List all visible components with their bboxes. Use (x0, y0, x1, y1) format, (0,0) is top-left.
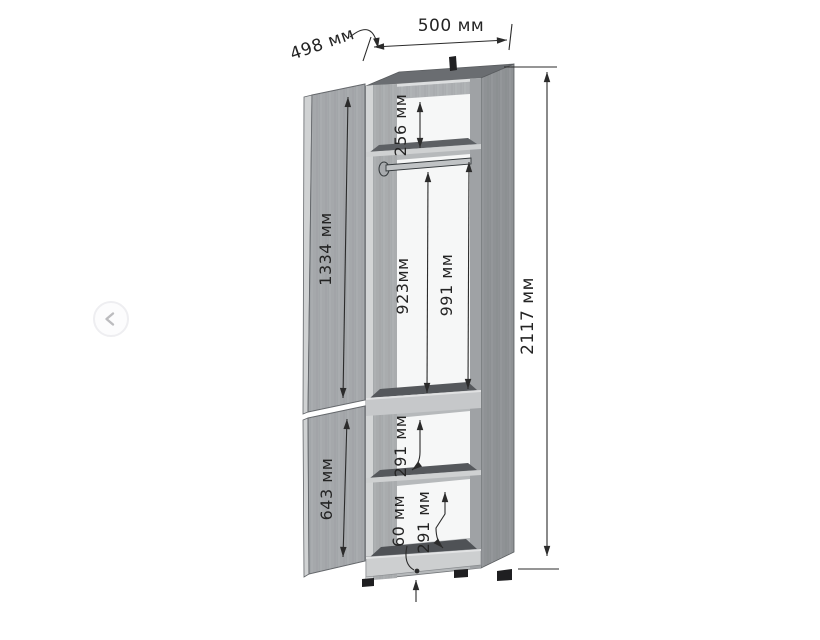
foot-left (362, 578, 374, 587)
right-inner-wall (470, 78, 481, 569)
chevron-left-icon (100, 308, 122, 330)
dim-label-rod-height: 923мм (393, 257, 412, 314)
foot-right (454, 569, 468, 578)
dimension-top-width: 500 мм (363, 16, 512, 61)
dim-label-lower-door: 643 мм (317, 458, 336, 521)
dim-label-total-height: 2117 мм (518, 277, 538, 355)
right-side-panel-grain (481, 64, 514, 568)
dim-label-upper-door: 1334 мм (316, 212, 335, 285)
dim-label-plinth: 60 мм (389, 495, 408, 547)
cabinet-body (362, 56, 514, 587)
foot-side (497, 569, 512, 581)
dim-label-middle-compartment: 291 мм (391, 415, 410, 478)
dim-tick (509, 24, 512, 50)
product-image-viewer: 500 мм 498 мм 2117 мм 1334 мм 643 мм 256… (0, 0, 820, 640)
dim-leader-dot (415, 569, 420, 574)
dim-label-bottom-compartment: 291 мм (414, 491, 433, 554)
dim-label-top-width: 500 мм (418, 16, 485, 36)
dim-label-top-depth: 498 мм (288, 24, 357, 65)
top-hook-peg (449, 56, 457, 71)
dim-line (374, 40, 507, 47)
dimension-top-depth: 498 мм (288, 24, 378, 65)
dim-label-hanging-compartment: 991 мм (437, 254, 456, 317)
dim-tick (363, 37, 371, 61)
carousel-prev-button[interactable] (93, 301, 129, 337)
dim-label-top-compartment: 256 мм (391, 94, 410, 157)
front-left-edge (366, 85, 373, 580)
